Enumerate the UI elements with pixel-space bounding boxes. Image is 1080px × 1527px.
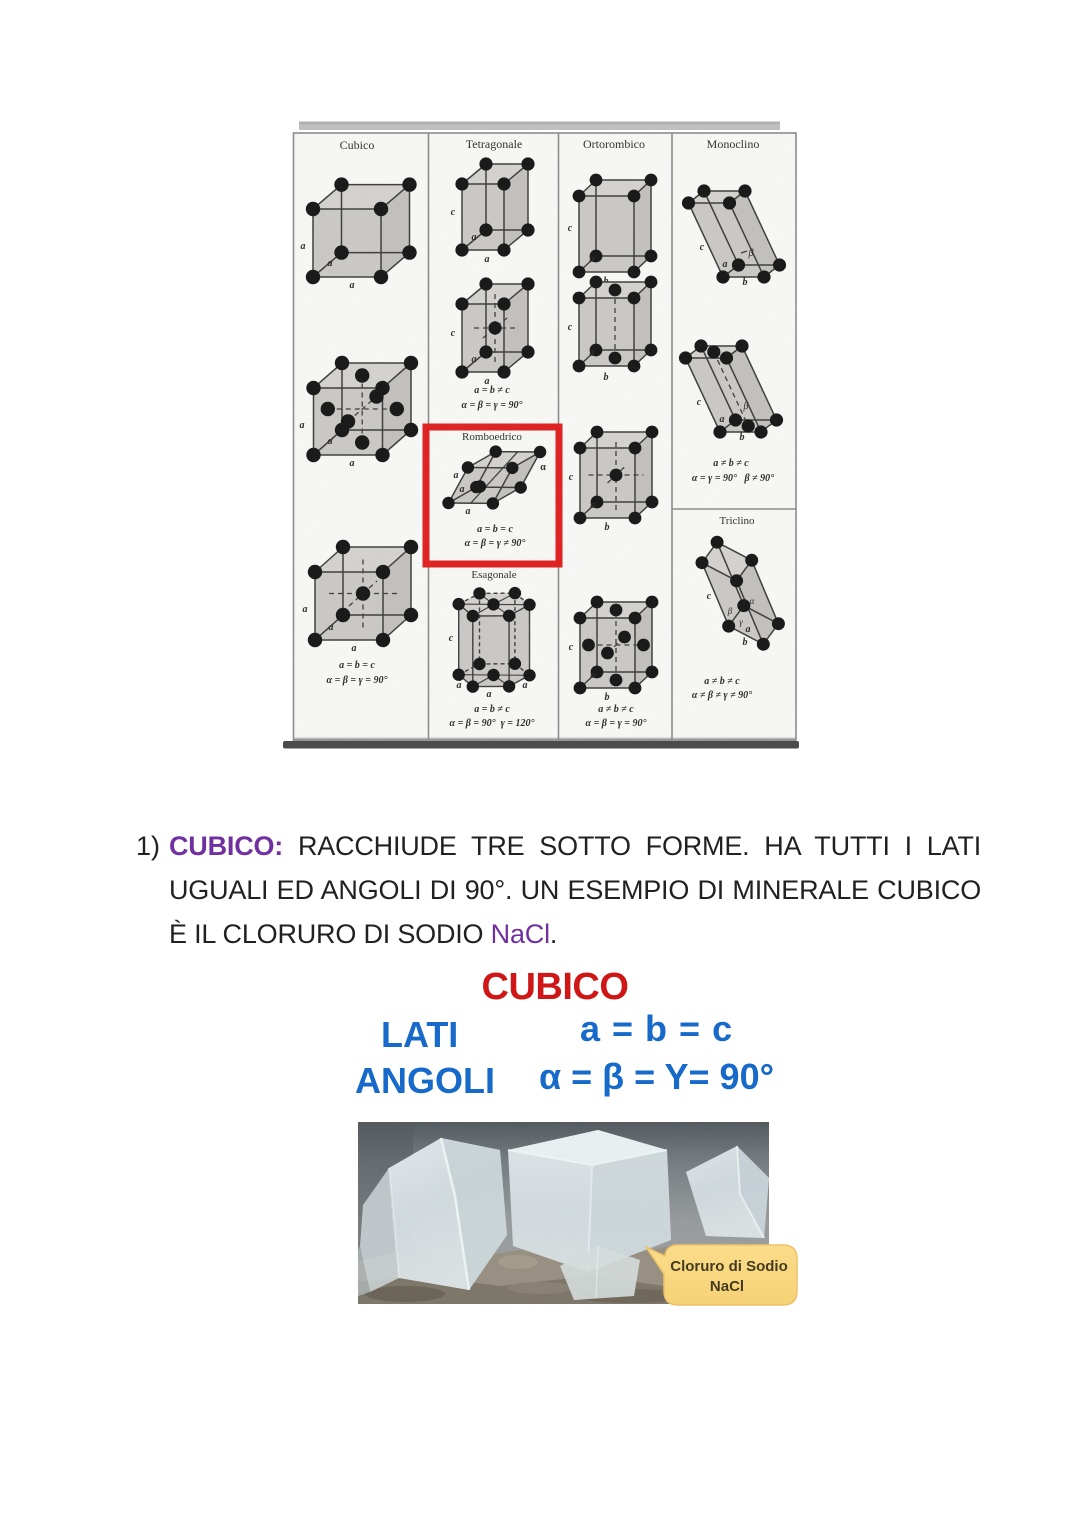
svg-text:Cloruro di Sodio: Cloruro di Sodio xyxy=(670,1258,788,1275)
svg-text:NaCl: NaCl xyxy=(710,1278,744,1295)
